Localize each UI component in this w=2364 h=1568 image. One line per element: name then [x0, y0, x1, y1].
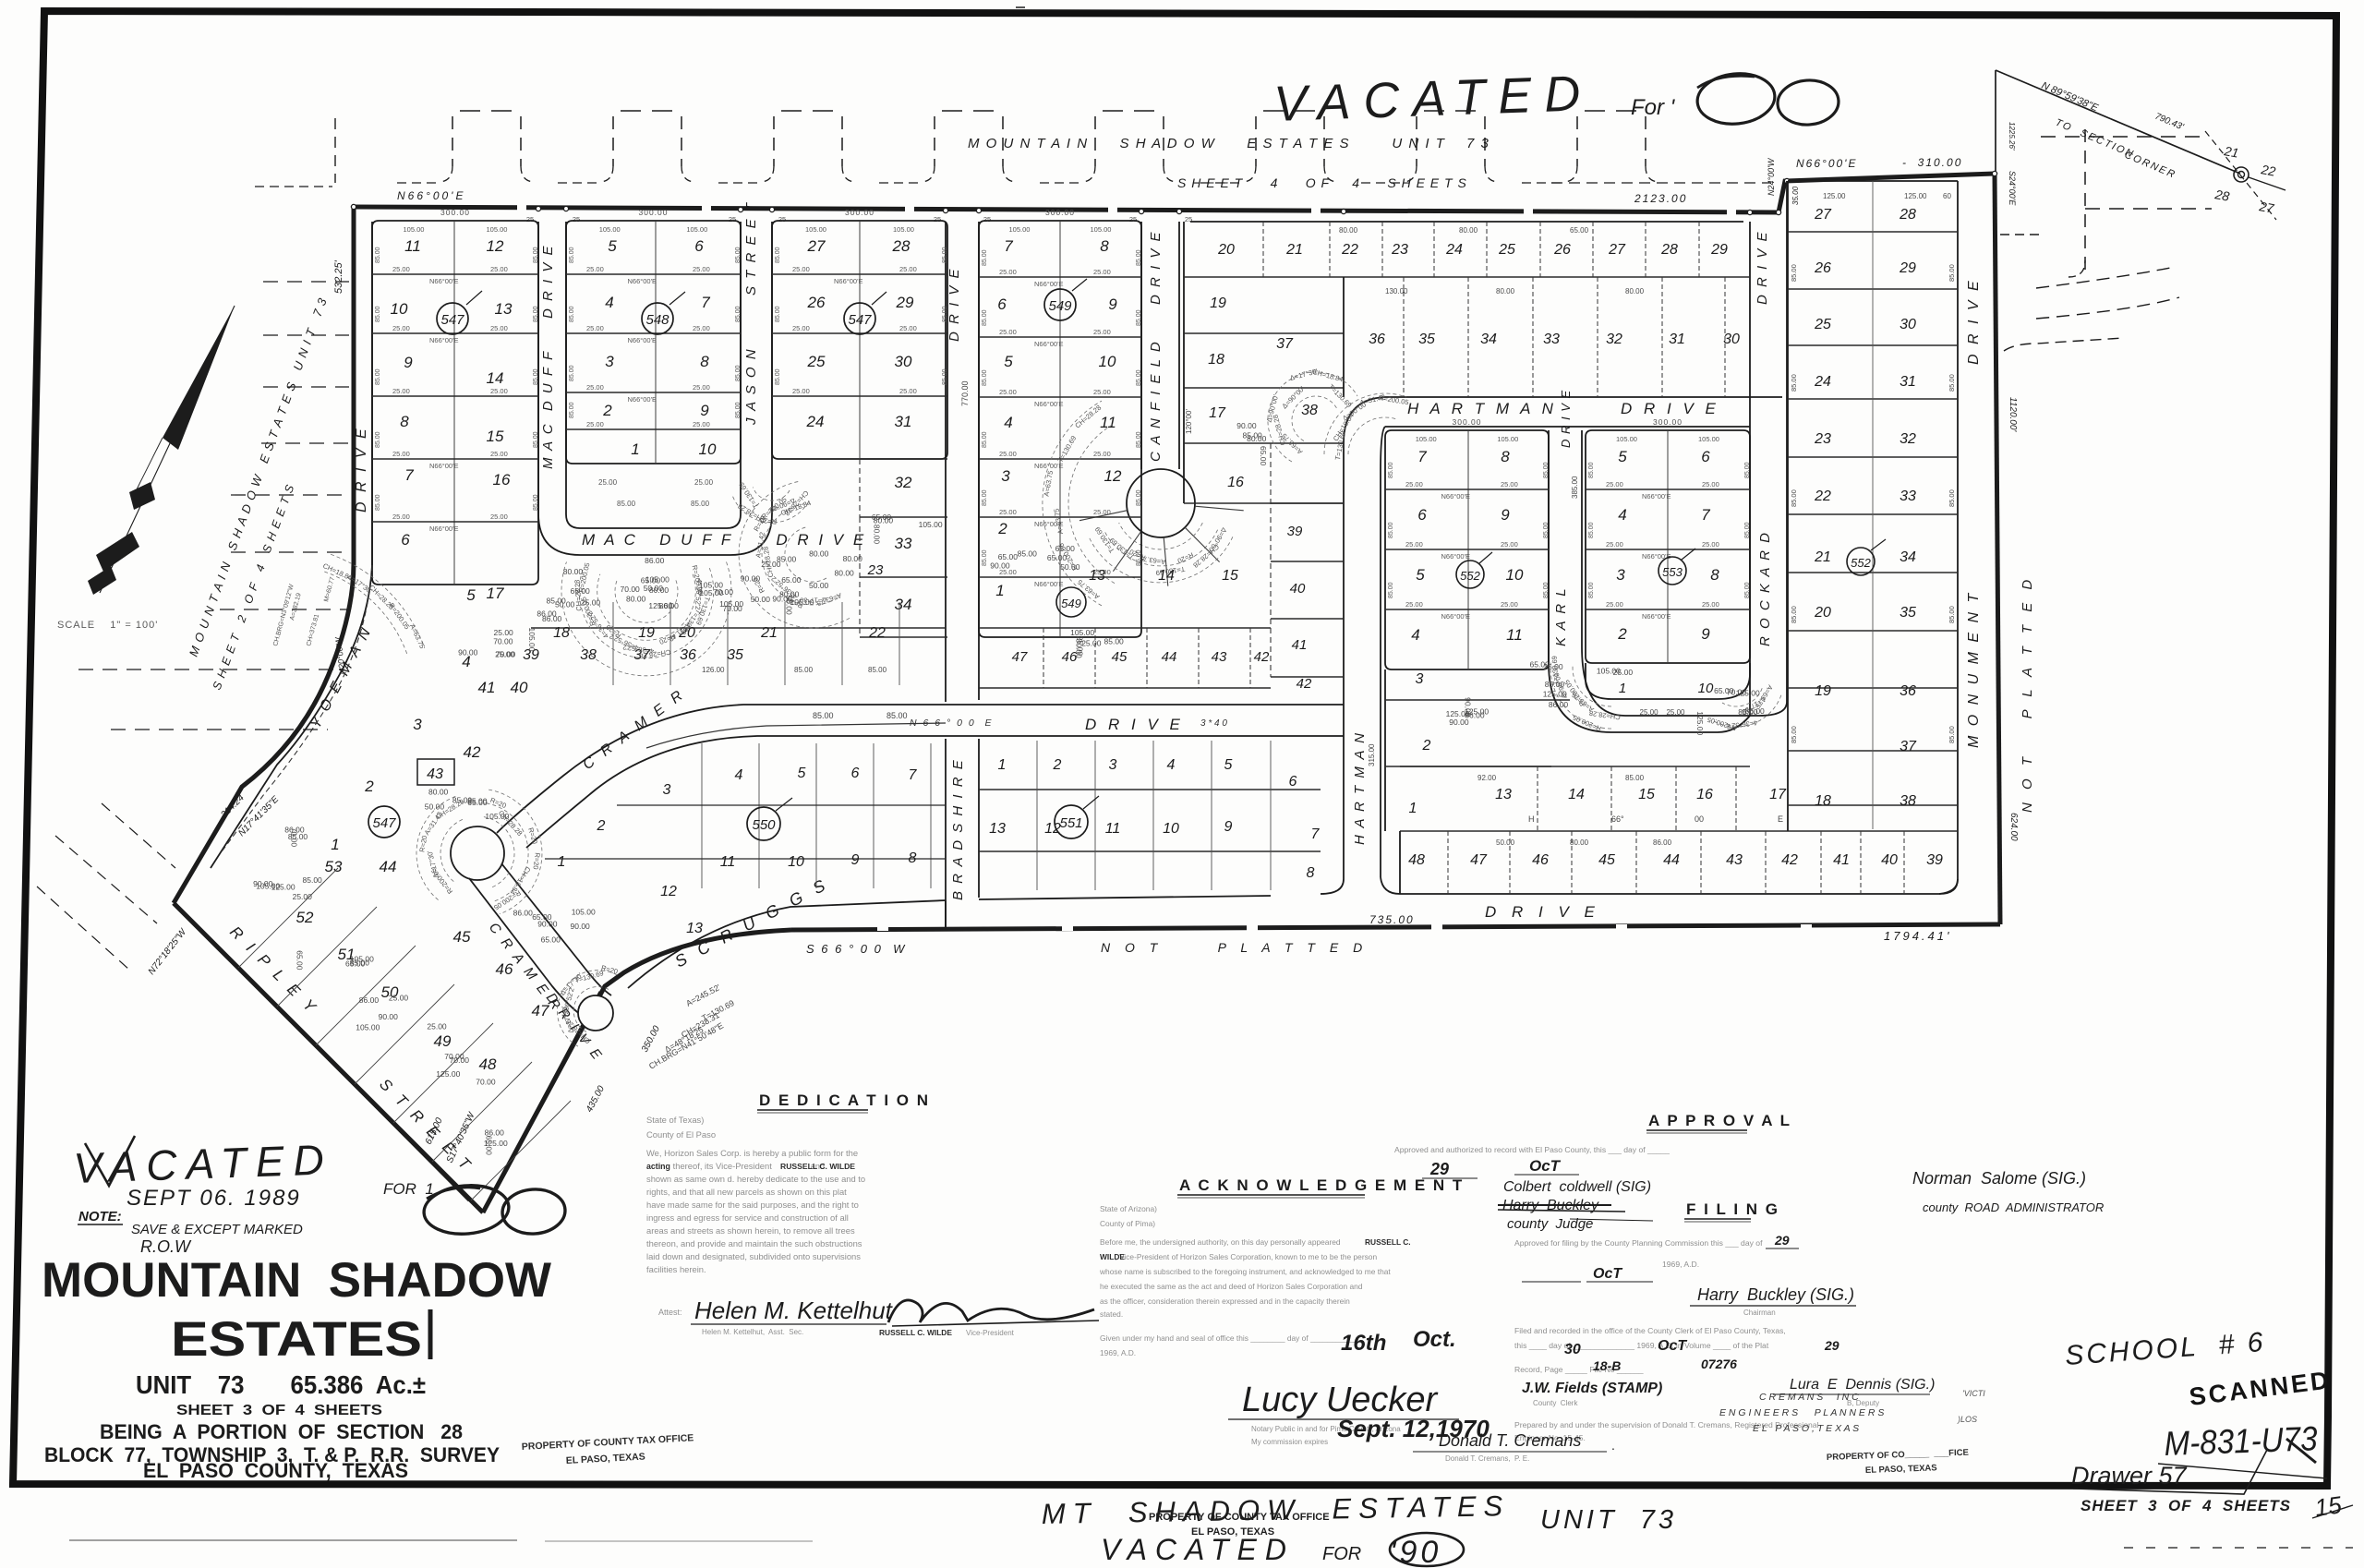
- svg-text:13: 13: [989, 821, 1006, 837]
- svg-text:105.00: 105.00: [1091, 225, 1112, 234]
- svg-text:125.00: 125.00: [1543, 689, 1567, 698]
- svg-text:25.00: 25.00: [1081, 639, 1102, 648]
- svg-text:770.00: 770.00: [960, 380, 970, 406]
- svg-text:25.00: 25.00: [586, 324, 604, 332]
- svg-text:85.00: 85.00: [1136, 431, 1142, 448]
- svg-text:14: 14: [1568, 787, 1585, 802]
- svg-text:26: 26: [1814, 260, 1831, 276]
- svg-text:85.00: 85.00: [569, 306, 575, 322]
- svg-text:48: 48: [479, 1055, 497, 1073]
- svg-text:50.00: 50.00: [751, 595, 771, 604]
- svg-text:34: 34: [895, 596, 912, 613]
- svg-text:4: 4: [735, 767, 743, 783]
- svg-text:105.00: 105.00: [893, 225, 914, 234]
- svg-text:85.00: 85.00: [533, 368, 539, 385]
- svg-text:stated.: stated.: [1100, 1309, 1123, 1319]
- svg-text:3: 3: [1616, 566, 1625, 584]
- svg-text:85.00: 85.00: [1388, 582, 1394, 598]
- svg-text:105.00: 105.00: [1497, 435, 1518, 443]
- svg-text:11: 11: [404, 237, 421, 255]
- svg-text:85.00: 85.00: [1588, 522, 1595, 538]
- svg-text:C A N F I E L D: C A N F I E L D: [1148, 340, 1164, 462]
- svg-text:46: 46: [1532, 852, 1549, 868]
- svg-text:40: 40: [1290, 581, 1306, 597]
- svg-text:80.00: 80.00: [1339, 226, 1358, 235]
- svg-text:25.00: 25.00: [693, 420, 710, 428]
- svg-text:25.00: 25.00: [1606, 540, 1623, 549]
- svg-text:31: 31: [1669, 332, 1685, 347]
- svg-text:85.00: 85.00: [942, 306, 948, 322]
- svg-text:R O C K A R D: R O C K A R D: [1757, 531, 1773, 646]
- svg-text:29: 29: [1899, 260, 1916, 276]
- svg-text:1: 1: [331, 836, 339, 853]
- svg-text:105.00: 105.00: [485, 812, 509, 821]
- svg-text:25.00: 25.00: [1093, 268, 1111, 276]
- svg-text:85.00: 85.00: [691, 500, 710, 508]
- svg-text:5: 5: [798, 766, 806, 781]
- svg-text:549: 549: [1061, 597, 1081, 610]
- svg-text:85.00: 85.00: [375, 306, 381, 322]
- svg-text:10: 10: [1099, 353, 1116, 370]
- svg-text:25.00: 25.00: [999, 450, 1017, 458]
- svg-text:9: 9: [1501, 506, 1510, 524]
- svg-text:D R I V E: D R I V E: [1485, 903, 1600, 921]
- svg-text:25.00: 25.00: [999, 268, 1017, 276]
- svg-text:6: 6: [851, 766, 860, 781]
- svg-text:80.00: 80.00: [1459, 226, 1478, 235]
- svg-text:85.00: 85.00: [452, 796, 473, 805]
- svg-text:70.00: 70.00: [621, 585, 641, 594]
- svg-text:25.00: 25.00: [1405, 480, 1423, 488]
- svg-text:23: 23: [867, 562, 884, 578]
- svg-text:3: 3: [413, 716, 422, 733]
- svg-text:125.00: 125.00: [1695, 711, 1705, 735]
- svg-text:10: 10: [788, 854, 804, 870]
- svg-text:624.00: 624.00: [2008, 813, 2019, 841]
- svg-text:4: 4: [1618, 506, 1626, 524]
- svg-text:.: .: [1611, 1438, 1615, 1453]
- svg-text:85.00: 85.00: [1744, 522, 1751, 538]
- svg-text:14: 14: [487, 369, 504, 387]
- svg-text:WILDE: WILDE: [1100, 1252, 1125, 1261]
- svg-text:85.00: 85.00: [982, 369, 988, 386]
- svg-text:Drawer 57: Drawer 57: [2071, 1462, 2188, 1490]
- svg-text:N66°00'E: N66°00'E: [1034, 340, 1064, 348]
- svg-text:105.00: 105.00: [919, 520, 943, 529]
- svg-text:22: 22: [868, 625, 886, 641]
- svg-text:50.00: 50.00: [809, 581, 829, 590]
- svg-text:85.00: 85.00: [735, 247, 742, 263]
- svg-text:33: 33: [1900, 488, 1916, 504]
- svg-text:85.00: 85.00: [1136, 249, 1142, 266]
- svg-text:24: 24: [1445, 242, 1463, 258]
- svg-text:VACATED: VACATED: [73, 1135, 334, 1192]
- svg-text:25.00: 25.00: [1093, 450, 1111, 458]
- svg-text:SCALE 1" = 100': SCALE 1" = 100': [57, 620, 158, 631]
- svg-text:N66°00'E: N66°00'E: [628, 277, 657, 285]
- svg-text:N66°00'E: N66°00'E: [1642, 612, 1671, 621]
- svg-text:85.00: 85.00: [868, 666, 887, 674]
- svg-text:34: 34: [1900, 549, 1916, 565]
- svg-text:85.00: 85.00: [1738, 707, 1758, 717]
- svg-text:N66°00'E: N66°00'E: [429, 462, 459, 470]
- svg-text:85.00: 85.00: [375, 494, 381, 511]
- svg-text:37: 37: [1276, 336, 1294, 352]
- svg-text:25: 25: [1129, 215, 1137, 223]
- svg-text:S 6 6 ° 0 0 W: S 6 6 ° 0 0 W: [806, 942, 906, 956]
- svg-text:25.00: 25.00: [1702, 540, 1719, 549]
- svg-text:25.00: 25.00: [586, 383, 604, 392]
- svg-text:85.00: 85.00: [569, 247, 575, 263]
- svg-text:7: 7: [1311, 826, 1321, 842]
- svg-text:85.00: 85.00: [1948, 264, 1956, 282]
- svg-text:85.00: 85.00: [1790, 726, 1798, 743]
- svg-text:85.00: 85.00: [982, 431, 988, 448]
- svg-text:whose name is subscribed to th: whose name is subscribed to the foregoin…: [1099, 1267, 1391, 1276]
- svg-text:85.00: 85.00: [775, 306, 781, 322]
- svg-text:N66°00'E: N66°00'E: [397, 189, 465, 202]
- svg-text:12: 12: [487, 237, 504, 255]
- svg-text:42: 42: [1781, 852, 1798, 868]
- svg-text:A C K N O W L E D G E M E N T: A C K N O W L E D G E M E N T: [1179, 1176, 1464, 1194]
- svg-text:N66°00'E: N66°00'E: [628, 395, 657, 404]
- svg-text:OcT: OcT: [1529, 1157, 1562, 1175]
- svg-text:105.00: 105.00: [1698, 435, 1719, 443]
- svg-text:K A R L: K A R L: [1553, 586, 1569, 646]
- svg-text:1: 1: [995, 582, 1004, 599]
- svg-text:105.00: 105.00: [645, 574, 669, 584]
- svg-text:Harry Buckley (SIG.): Harry Buckley (SIG.): [1697, 1285, 1854, 1304]
- svg-text:42: 42: [1297, 676, 1312, 692]
- svg-text:Colbert coldwell (SIG): Colbert coldwell (SIG): [1503, 1179, 1651, 1195]
- svg-text:RUSSELL C. WILDE: RUSSELL C. WILDE: [879, 1328, 952, 1337]
- svg-text:25.00: 25.00: [392, 387, 410, 395]
- svg-text:N24°00'W: N24°00'W: [1767, 157, 1776, 196]
- svg-text:105.00: 105.00: [1009, 225, 1031, 234]
- svg-text:Record, Page _____ File No ___: Record, Page _____ File No ______: [1514, 1365, 1644, 1374]
- svg-text:6: 6: [401, 531, 410, 549]
- svg-text:N66°00'E: N66°00'E: [834, 277, 863, 285]
- svg-text:county ROAD ADMINISTRATOR: county ROAD ADMINISTRATOR: [1923, 1200, 2104, 1214]
- svg-text:25.00: 25.00: [389, 993, 409, 1002]
- svg-text:9: 9: [851, 852, 860, 868]
- svg-text:MOUNTAIN SHADOW: MOUNTAIN SHADOW: [42, 1253, 551, 1308]
- svg-text:32: 32: [1900, 431, 1916, 447]
- svg-text:85.00: 85.00: [375, 368, 381, 385]
- svg-text:105.00: 105.00: [572, 908, 596, 917]
- svg-text:29: 29: [1824, 1338, 1839, 1353]
- svg-text:70.00: 70.00: [476, 1078, 496, 1087]
- svg-text:6: 6: [1289, 774, 1297, 790]
- svg-text:22: 22: [2259, 162, 2276, 179]
- svg-text:Approved for filing by the Cou: Approved for filing by the County Planni…: [1514, 1238, 1763, 1248]
- svg-text:85.00: 85.00: [1543, 582, 1550, 598]
- svg-text:85.00: 85.00: [1588, 582, 1595, 598]
- svg-text:3: 3: [1109, 757, 1117, 773]
- svg-text:70.00: 70.00: [493, 636, 513, 645]
- svg-text:85.00: 85.00: [1948, 489, 1956, 507]
- svg-text:553: 553: [1662, 565, 1683, 579]
- svg-text:24: 24: [806, 413, 825, 430]
- svg-text:14: 14: [1158, 568, 1175, 584]
- svg-text:25.00: 25.00: [1606, 480, 1623, 488]
- svg-text:5: 5: [1224, 757, 1233, 773]
- svg-text:Before me, the undersigned aut: Before me, the undersigned authority, on…: [1100, 1237, 1364, 1247]
- svg-text:H: H: [1528, 814, 1535, 824]
- svg-text:'VICTI: 'VICTI: [1962, 1389, 1985, 1398]
- svg-text:85.00: 85.00: [1948, 374, 1956, 392]
- svg-text:30: 30: [895, 353, 912, 370]
- svg-text:86.00: 86.00: [645, 556, 665, 565]
- svg-text:7: 7: [1701, 506, 1710, 524]
- svg-text:BEING A PORTION OF SECTION: BEING A PORTION OF SECTION 28: [100, 1420, 463, 1443]
- svg-text:20: 20: [1217, 242, 1235, 258]
- svg-text:85.00: 85.00: [533, 306, 539, 322]
- svg-text:thereon, and provide and maint: thereon, and provide and maintain the su…: [646, 1238, 862, 1248]
- svg-text:25.00: 25.00: [693, 383, 710, 392]
- svg-text:32: 32: [1606, 332, 1622, 347]
- svg-text:25.00: 25.00: [490, 387, 508, 395]
- svg-text:7: 7: [909, 767, 918, 783]
- svg-text:27: 27: [807, 237, 826, 255]
- svg-text:25.00: 25.00: [1093, 388, 1111, 396]
- svg-text:85.00: 85.00: [775, 368, 781, 385]
- svg-text:85.00: 85.00: [375, 431, 381, 448]
- svg-text:25.00: 25.00: [1093, 508, 1111, 516]
- svg-text:85.00: 85.00: [886, 711, 908, 720]
- svg-text:NOTE:: NOTE:: [78, 1209, 122, 1224]
- svg-text:H A R T M A N: H A R T M A N: [1352, 731, 1368, 845]
- svg-text:7: 7: [1417, 448, 1427, 465]
- svg-text:90.00: 90.00: [537, 919, 558, 928]
- svg-text:M A C D U F F: M A C D U F F: [540, 350, 556, 469]
- svg-text:49: 49: [434, 1032, 452, 1050]
- svg-text:80.00: 80.00: [428, 788, 449, 797]
- svg-text:D E D I C A T I O N: D E D I C A T I O N: [759, 1092, 930, 1109]
- svg-text:25: 25: [1498, 242, 1515, 258]
- svg-text:86.00: 86.00: [513, 909, 534, 918]
- svg-text:3: 3: [1001, 467, 1010, 485]
- svg-text:J.W. Fields (STAMP): J.W. Fields (STAMP): [1522, 1381, 1662, 1396]
- svg-text:25.00: 25.00: [581, 598, 601, 608]
- svg-text:65.00: 65.00: [345, 959, 366, 968]
- svg-text:C R E M A N S I N C: C R E M A N S I N C: [1759, 1392, 1859, 1403]
- svg-text:70.00: 70.00: [496, 649, 516, 658]
- svg-text:85.00: 85.00: [533, 494, 539, 511]
- svg-text:50.00: 50.00: [784, 595, 793, 615]
- svg-text:25.00: 25.00: [586, 265, 604, 273]
- svg-text:105.00: 105.00: [1416, 435, 1437, 443]
- svg-text:85.00: 85.00: [942, 247, 948, 263]
- svg-text:85.00: 85.00: [1625, 774, 1645, 782]
- svg-text:70.00: 70.00: [450, 1055, 470, 1065]
- svg-text:10: 10: [1698, 681, 1714, 696]
- svg-text:86.00: 86.00: [359, 995, 380, 1005]
- svg-text:2: 2: [997, 520, 1007, 537]
- svg-text:126.00: 126.00: [702, 666, 725, 674]
- svg-text:D R I V E: D R I V E: [1085, 716, 1184, 733]
- svg-text:11: 11: [720, 854, 736, 870]
- svg-text:Helen M. Kettelhut, Asst. Se: Helen M. Kettelhut, Asst. Sec.: [702, 1328, 803, 1336]
- svg-text:13: 13: [686, 921, 703, 936]
- svg-text:90.00: 90.00: [1236, 421, 1257, 430]
- svg-text:5: 5: [1416, 566, 1425, 584]
- svg-text:M-831-U73: M-831-U73: [2164, 1419, 2319, 1463]
- svg-text:50.00: 50.00: [425, 802, 445, 811]
- svg-text:VACATED: VACATED: [1101, 1533, 1295, 1566]
- svg-text:547: 547: [848, 312, 872, 328]
- svg-text:3 * 4 0: 3 * 4 0: [1200, 718, 1227, 729]
- svg-text:25.00: 25.00: [792, 387, 810, 395]
- svg-text:1: 1: [1619, 681, 1626, 696]
- svg-text:15: 15: [1222, 568, 1238, 584]
- svg-text:551: 551: [1059, 815, 1082, 831]
- svg-text:552: 552: [1460, 569, 1480, 583]
- svg-text:25.00: 25.00: [1702, 600, 1719, 609]
- svg-text:FOR 1: FOR 1: [383, 1180, 434, 1198]
- svg-text:17: 17: [487, 585, 504, 602]
- svg-text:552: 552: [1851, 556, 1871, 570]
- svg-text:RUSSELL C. WILDE: RUSSELL C. WILDE: [780, 1162, 855, 1171]
- svg-text:shown as same own d. hereby de: shown as same own d. hereby dedicate to …: [646, 1174, 865, 1184]
- svg-text:125.00: 125.00: [1904, 192, 1927, 200]
- svg-text:25.00: 25.00: [490, 450, 508, 458]
- svg-text:19: 19: [1815, 683, 1831, 699]
- svg-text:19: 19: [638, 625, 655, 641]
- svg-text:8: 8: [700, 353, 709, 370]
- svg-text:N66°00'E: N66°00'E: [1642, 492, 1671, 501]
- svg-text:21: 21: [1285, 242, 1303, 258]
- svg-text:State of Arizona): State of Arizona): [1100, 1204, 1157, 1213]
- svg-text:25.00: 25.00: [899, 387, 917, 395]
- svg-text:549: 549: [1048, 298, 1072, 314]
- svg-text:25.00: 25.00: [1093, 328, 1111, 336]
- svg-text:65.00: 65.00: [1714, 686, 1734, 695]
- svg-text:85.00: 85.00: [569, 365, 575, 381]
- svg-text:2: 2: [597, 818, 606, 834]
- svg-text:42: 42: [1254, 649, 1270, 665]
- svg-text:85.00: 85.00: [1545, 680, 1565, 689]
- svg-text:25.00: 25.00: [1501, 600, 1518, 609]
- svg-text:735.00: 735.00: [1369, 913, 1415, 926]
- svg-text:D R I V E: D R I V E: [1621, 400, 1719, 417]
- svg-text:as the officer, consideration: as the officer, consideration therein ex…: [1100, 1297, 1350, 1306]
- svg-text:38: 38: [1301, 403, 1318, 418]
- svg-text:105.00: 105.00: [599, 225, 621, 234]
- svg-text:laid down and designated, subd: laid down and designated, subdivided ont…: [646, 1251, 861, 1261]
- svg-text:25.00: 25.00: [490, 324, 508, 332]
- svg-text:90.00: 90.00: [1449, 718, 1469, 727]
- svg-text:35: 35: [1418, 332, 1435, 347]
- svg-text:3: 3: [605, 353, 614, 370]
- svg-text:have made same for the said pu: have made same for the said purposes, an…: [646, 1200, 859, 1210]
- svg-text:25.00: 25.00: [494, 628, 514, 637]
- svg-text:25.00: 25.00: [1702, 480, 1719, 488]
- svg-text:85.00: 85.00: [1790, 606, 1798, 623]
- svg-text:FOR: FOR: [1322, 1544, 1361, 1564]
- svg-text:25.00: 25.00: [999, 388, 1017, 396]
- svg-text:Norman Salome (SIG.): Norman Salome (SIG.): [1912, 1169, 2086, 1188]
- svg-text:36: 36: [1369, 332, 1385, 347]
- svg-text:21: 21: [2222, 143, 2239, 161]
- svg-text:16th: 16th: [1341, 1331, 1386, 1356]
- svg-text:8: 8: [400, 413, 409, 430]
- svg-text:85.00: 85.00: [982, 249, 988, 266]
- svg-text:D R I V E: D R I V E: [1148, 230, 1164, 305]
- svg-text:18: 18: [1208, 352, 1224, 368]
- svg-text:25.00: 25.00: [899, 265, 917, 273]
- svg-text:For ': For ': [1631, 95, 1676, 120]
- svg-text:16: 16: [1227, 475, 1244, 490]
- svg-text:8: 8: [1307, 865, 1315, 881]
- svg-text:45: 45: [1112, 649, 1128, 665]
- svg-text:1: 1: [1409, 801, 1417, 816]
- svg-text:9: 9: [1224, 819, 1233, 835]
- svg-text:3: 3: [1416, 671, 1424, 687]
- svg-text:85.00: 85.00: [1543, 522, 1550, 538]
- svg-text:E L P A S O , T E X A S: E L P A S O , T E X A S: [1753, 1423, 1859, 1434]
- svg-text:38: 38: [1900, 793, 1916, 809]
- svg-text:1969, A.D.: 1969, A.D.: [1100, 1348, 1136, 1357]
- svg-text:65.00: 65.00: [571, 586, 591, 596]
- svg-text:85.00: 85.00: [1744, 582, 1751, 598]
- svg-text:39: 39: [1287, 524, 1303, 539]
- svg-text:80.00: 80.00: [835, 569, 855, 578]
- svg-text:25.00: 25.00: [586, 420, 604, 428]
- svg-text:11: 11: [1105, 821, 1121, 837]
- svg-text:23: 23: [1814, 431, 1831, 447]
- svg-text:N66°00'E: N66°00'E: [1034, 400, 1064, 408]
- svg-text:85.00: 85.00: [777, 555, 797, 564]
- svg-text:2: 2: [602, 402, 612, 419]
- svg-text:85.00: 85.00: [1790, 489, 1798, 507]
- svg-text:65.00: 65.00: [295, 950, 305, 971]
- svg-text:6: 6: [997, 296, 1007, 313]
- svg-text:25.00: 25.00: [392, 265, 410, 273]
- svg-text:65.00: 65.00: [541, 935, 561, 945]
- svg-text:40: 40: [511, 679, 528, 696]
- svg-text:SHEET 3 OF 4 SHEETS: SHEET 3 OF 4 SHEETS: [2081, 1497, 2291, 1514]
- svg-text:85.00: 85.00: [735, 306, 742, 322]
- svg-text:22: 22: [1341, 242, 1358, 258]
- svg-text:125.00: 125.00: [1736, 689, 1760, 698]
- svg-text:50.00: 50.00: [555, 600, 575, 609]
- svg-text:12: 12: [1104, 467, 1122, 485]
- svg-text:85.00: 85.00: [1136, 369, 1142, 386]
- svg-text:37: 37: [1900, 739, 1917, 754]
- svg-text:65.00: 65.00: [485, 1136, 494, 1156]
- svg-text:8: 8: [1710, 566, 1719, 584]
- svg-text:acting: acting: [646, 1162, 670, 1171]
- svg-text:Donald T. Cremans, P. E.: Donald T. Cremans, P. E.: [1445, 1454, 1529, 1463]
- svg-text:85.00: 85.00: [1790, 264, 1798, 282]
- svg-text:N66°00'E: N66°00'E: [1642, 552, 1671, 561]
- svg-text:N66°00'E: N66°00'E: [1441, 552, 1471, 561]
- svg-text:S T R E E T: S T R E E T: [743, 201, 759, 296]
- svg-text:25.00: 25.00: [792, 324, 810, 332]
- svg-text:VACATED: VACATED: [1272, 66, 1594, 132]
- svg-text:300.00: 300.00: [1453, 417, 1482, 427]
- svg-text:105.00: 105.00: [805, 225, 826, 234]
- svg-text:)LOS: )LOS: [1957, 1415, 1977, 1424]
- svg-text:43: 43: [1212, 649, 1227, 665]
- svg-text:25.00: 25.00: [999, 328, 1017, 336]
- svg-text:13: 13: [495, 300, 513, 318]
- svg-text:2: 2: [364, 778, 374, 795]
- svg-text:25.00: 25.00: [598, 478, 618, 487]
- svg-text:25: 25: [573, 215, 580, 223]
- svg-text:F I L I N G: F I L I N G: [1686, 1200, 1779, 1218]
